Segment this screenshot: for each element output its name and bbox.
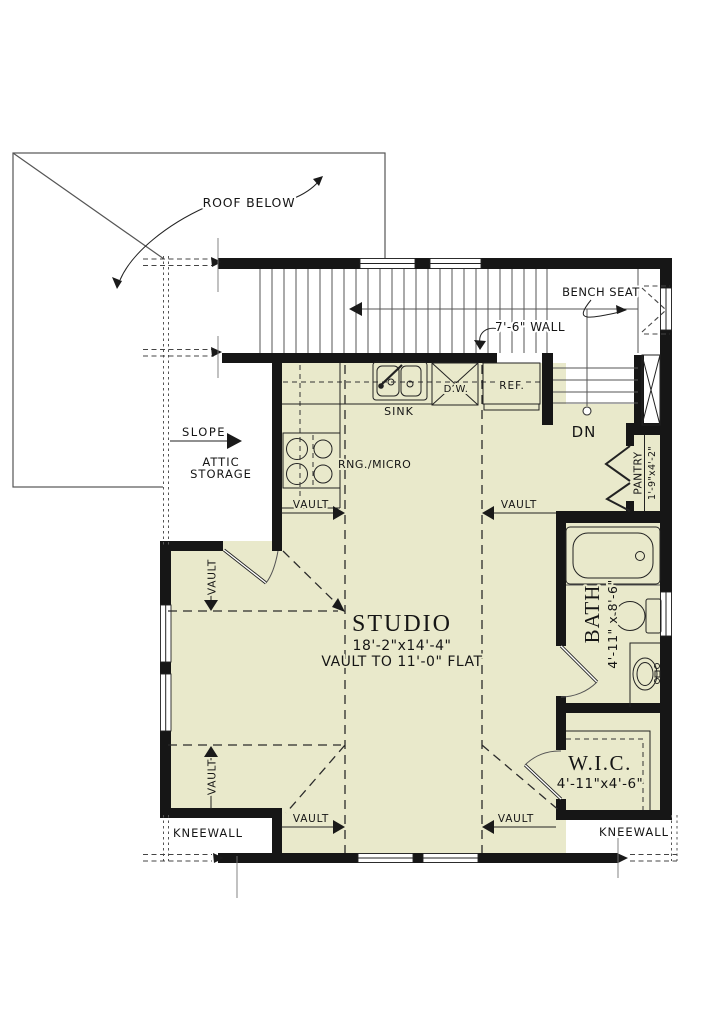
studio-dims: 18'-2"x14'-4"	[353, 638, 452, 654]
bath-dims: 4'-11" x 8'-6"	[605, 579, 620, 669]
wic-dims: 4'-11"x4'-6"	[557, 776, 644, 792]
dn-label: DN	[572, 423, 597, 441]
floor-plan-page: VAULT VAULT VAULT VAULT VAULT VAULT ROOF…	[0, 0, 724, 1024]
roof-below-label: ROOF BELOW	[203, 195, 296, 210]
window-top-2	[430, 259, 481, 269]
floor-plan-drawing: VAULT VAULT VAULT VAULT VAULT VAULT ROOF…	[0, 0, 724, 1024]
window-right-bench	[661, 288, 672, 330]
bench-seat-label: BENCH SEAT	[562, 285, 640, 299]
vault-label-bottom-left: VAULT	[293, 813, 329, 825]
wall-height-label: 7'-6" WALL	[495, 320, 565, 334]
kneewall-left-label: KNEEWALL	[173, 826, 243, 840]
slope-label: SLOPE	[182, 425, 226, 439]
vault-label-left-upper: VAULT	[207, 559, 219, 595]
pantry-name: PANTRY	[633, 451, 645, 494]
studio-name: STUDIO	[352, 611, 452, 637]
kneewall-right-label: KNEEWALL	[599, 825, 669, 839]
pantry-dims: 1'-9"x4'-2"	[647, 446, 658, 500]
window-bottom-1	[358, 854, 413, 863]
window-left-1	[161, 605, 172, 662]
attic-storage-label-2: STORAGE	[190, 467, 252, 481]
studio-ceiling-note: VAULT TO 11'-0" FLAT	[321, 654, 482, 670]
vault-label-kitchen-left: VAULT	[293, 499, 329, 511]
wic-name: W.I.C.	[568, 751, 632, 775]
chase-box	[642, 355, 660, 425]
range-micro-label: RNG./MICRO	[338, 458, 411, 471]
vault-label-kitchen-right: VAULT	[501, 499, 537, 511]
vault-label-left-lower: VAULT	[207, 759, 219, 795]
bath-name: BATH	[580, 585, 604, 644]
sink-label: SINK	[384, 405, 414, 418]
window-left-2	[161, 674, 172, 731]
dishwasher-label: D.W.	[444, 384, 469, 395]
window-right-bath	[661, 592, 672, 636]
window-top-1	[360, 259, 415, 269]
vault-label-bottom-right: VAULT	[498, 813, 534, 825]
refrigerator-label: REF.	[499, 380, 525, 392]
window-bottom-2	[423, 854, 478, 863]
